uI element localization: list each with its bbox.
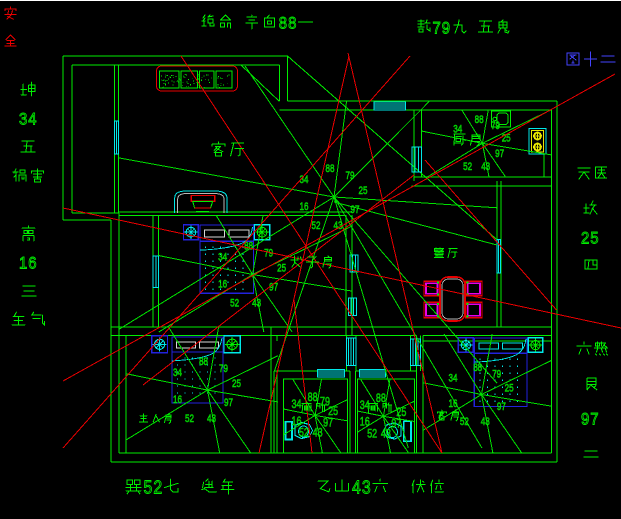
svg-text:88: 88 — [473, 362, 482, 374]
svg-text:25: 25 — [277, 262, 286, 274]
svg-text:34: 34 — [449, 372, 458, 384]
svg-text:34: 34 — [173, 367, 182, 379]
svg-text:25: 25 — [359, 185, 368, 197]
svg-text:4: 4 — [28, 110, 36, 129]
svg-text:43: 43 — [313, 426, 323, 440]
svg-text:2: 2 — [581, 229, 589, 248]
svg-text:2: 2 — [153, 478, 162, 498]
svg-text:97: 97 — [391, 417, 401, 431]
svg-text:88: 88 — [475, 114, 484, 126]
svg-text:5: 5 — [144, 478, 153, 498]
svg-text:4: 4 — [352, 478, 361, 498]
svg-text:79: 79 — [491, 120, 500, 132]
svg-text:97: 97 — [495, 148, 504, 160]
svg-text:16: 16 — [292, 414, 302, 428]
svg-text:52: 52 — [460, 416, 469, 428]
svg-text:9: 9 — [442, 19, 450, 38]
svg-text:97: 97 — [224, 397, 233, 409]
svg-text:43: 43 — [481, 161, 490, 173]
svg-text:88: 88 — [308, 390, 318, 404]
svg-text:1: 1 — [19, 254, 27, 273]
svg-text:5: 5 — [590, 229, 598, 248]
svg-text:43: 43 — [381, 426, 391, 440]
svg-text:43: 43 — [481, 416, 490, 428]
svg-text:9: 9 — [581, 410, 589, 429]
svg-text:7: 7 — [590, 410, 598, 429]
svg-text:52: 52 — [230, 297, 239, 309]
svg-text:79: 79 — [492, 369, 501, 381]
svg-text:16: 16 — [449, 398, 458, 410]
svg-text:7: 7 — [433, 19, 441, 38]
svg-text:3: 3 — [19, 110, 27, 129]
svg-text:97: 97 — [497, 401, 506, 413]
svg-text:52: 52 — [463, 161, 472, 173]
svg-text:79: 79 — [219, 363, 228, 375]
svg-text:16: 16 — [300, 201, 309, 213]
svg-text:97: 97 — [351, 204, 360, 216]
svg-text:3: 3 — [362, 478, 371, 498]
svg-text:79: 79 — [346, 170, 355, 182]
svg-text:97: 97 — [323, 416, 333, 430]
svg-text:34: 34 — [218, 251, 227, 263]
svg-text:16: 16 — [218, 278, 227, 290]
svg-text:8: 8 — [279, 14, 287, 33]
svg-text:52: 52 — [185, 413, 194, 425]
svg-text:16: 16 — [173, 394, 182, 406]
svg-text:8: 8 — [288, 14, 296, 33]
svg-text:25: 25 — [505, 383, 514, 395]
svg-text:88: 88 — [199, 356, 208, 368]
svg-text:43: 43 — [207, 413, 216, 425]
svg-text:25: 25 — [232, 378, 241, 390]
svg-text:79: 79 — [264, 247, 273, 259]
svg-text:34: 34 — [292, 397, 302, 411]
svg-text:16: 16 — [360, 415, 370, 429]
svg-text:88: 88 — [376, 391, 386, 405]
svg-text:6: 6 — [28, 254, 36, 273]
svg-text:52: 52 — [312, 220, 321, 232]
svg-text:88: 88 — [326, 163, 335, 175]
